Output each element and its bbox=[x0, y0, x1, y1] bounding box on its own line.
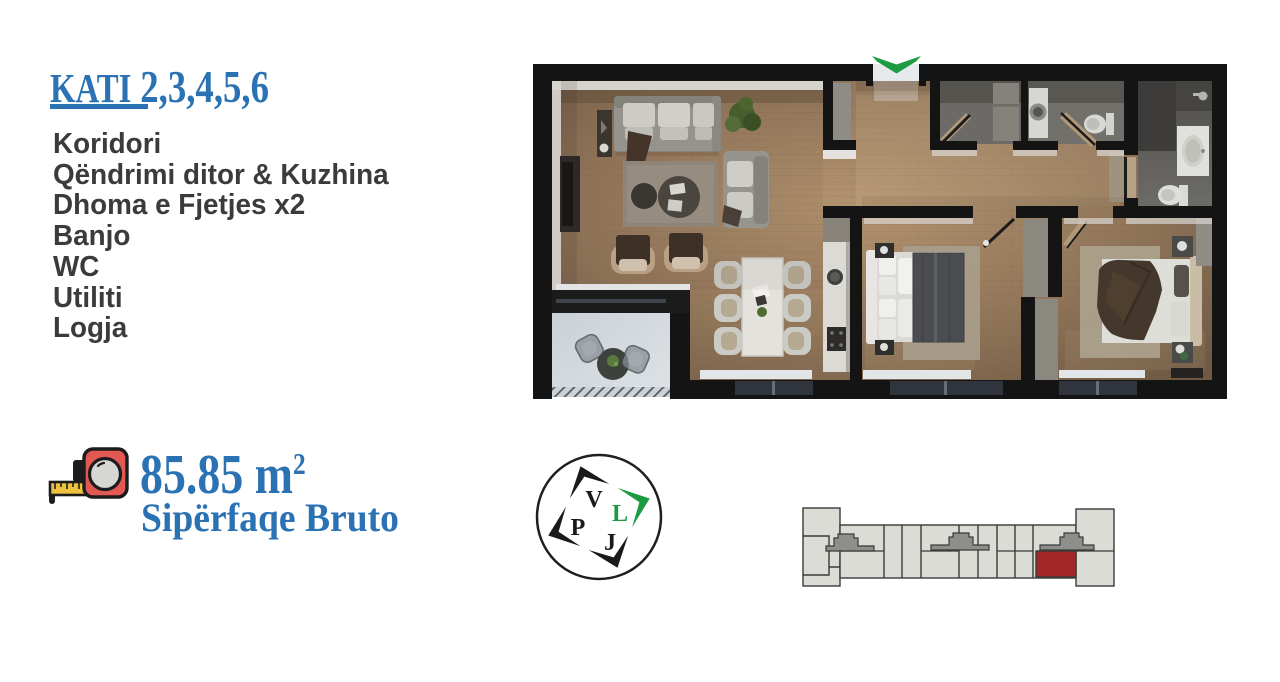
svg-text:L: L bbox=[612, 501, 628, 527]
svg-text:P: P bbox=[571, 515, 586, 541]
svg-text:V: V bbox=[585, 487, 603, 513]
svg-text:J: J bbox=[604, 530, 616, 556]
